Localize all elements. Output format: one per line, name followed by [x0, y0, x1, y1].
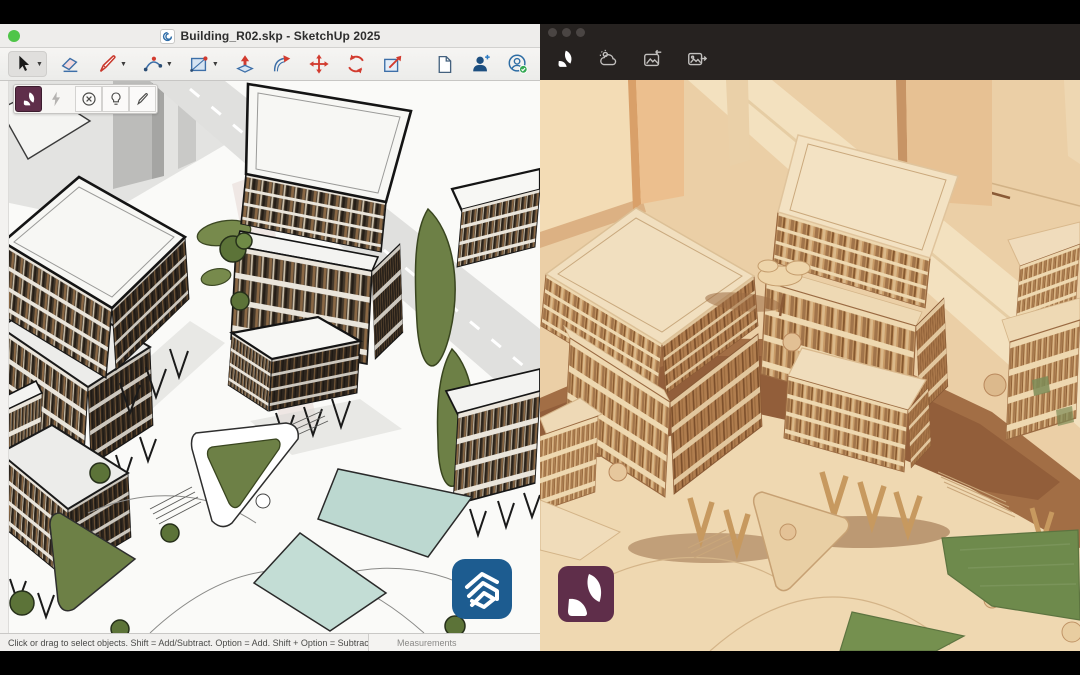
chevron-down-icon: ▼: [120, 61, 127, 68]
eraser-tool-button[interactable]: [56, 51, 84, 77]
traffic-light-minimize[interactable]: [562, 28, 571, 37]
pencil-icon: [96, 53, 118, 75]
add-collaborator-button[interactable]: [467, 51, 495, 77]
window-title: Building_R02.skp - SketchUp 2025: [181, 29, 381, 43]
veras-window: [540, 24, 1080, 651]
veras-header-toolbar: [552, 46, 710, 72]
image-arrow-out-icon: [686, 48, 708, 70]
lightbulb-icon: [108, 91, 124, 107]
veras-logo: [558, 566, 614, 622]
rotate-tool-button[interactable]: [342, 51, 370, 77]
rotate-icon: [345, 53, 367, 75]
cancel-render-button[interactable]: [75, 86, 102, 112]
sketchup-viewport[interactable]: [0, 81, 540, 633]
account-button[interactable]: [504, 51, 532, 77]
arc-tool-button[interactable]: ▼: [139, 51, 176, 77]
render-scene: [540, 80, 1080, 651]
screenshot-root: Building_R02.skp - SketchUp 2025 ▼ ▼ ▼ ▼: [0, 0, 1080, 675]
veras-button[interactable]: [15, 86, 42, 112]
sketch-pencil-button[interactable]: [129, 86, 156, 112]
document-icon: [434, 54, 455, 75]
eraser-icon: [59, 53, 81, 75]
titlebar-center: Building_R02.skp - SketchUp 2025: [0, 24, 540, 48]
image-arrow-in-icon: [642, 48, 664, 70]
new-document-button[interactable]: [431, 51, 458, 77]
push-pull-icon: [234, 53, 256, 75]
export-image-button[interactable]: [684, 46, 710, 72]
render-lightbulb-button[interactable]: [102, 86, 129, 112]
veras-header: [540, 24, 1080, 80]
cloud-sun-icon: [598, 48, 620, 70]
select-tool-button[interactable]: ▼: [8, 51, 47, 77]
viewport-left-gutter: [0, 81, 9, 633]
veras-leaf-icon: [21, 91, 37, 107]
veras-home-button[interactable]: [552, 46, 578, 72]
chevron-down-icon: ▼: [166, 61, 173, 68]
sketchup-logo: [452, 559, 512, 619]
traffic-light-green[interactable]: [8, 30, 20, 42]
veras-leaf-icon: [555, 49, 575, 69]
account-icon: [507, 53, 529, 75]
chevron-down-icon: ▼: [212, 61, 219, 68]
status-hint: Click or drag to select objects. Shift =…: [0, 638, 368, 648]
sketchup-app-icon: [160, 29, 175, 44]
person-plus-icon: [470, 53, 492, 75]
line-tool-button[interactable]: ▼: [93, 51, 130, 77]
move-icon: [308, 53, 330, 75]
push-pull-tool-button[interactable]: [231, 51, 259, 77]
follow-me-tool-button[interactable]: [268, 51, 296, 77]
rectangle-tool-button[interactable]: ▼: [185, 51, 222, 77]
arc-icon: [142, 53, 164, 75]
veras-plugin-toolbar: [13, 84, 158, 114]
lightning-icon: [49, 91, 63, 107]
select-arrow-icon: [12, 53, 34, 75]
scale-tool-button[interactable]: [379, 51, 407, 77]
pencil-icon: [135, 91, 151, 107]
measurements-box[interactable]: Measurements: [368, 634, 540, 651]
sketchup-titlebar: Building_R02.skp - SketchUp 2025: [0, 24, 540, 48]
model-scene: [0, 81, 540, 633]
rectangle-icon: [188, 53, 210, 75]
environment-settings-button[interactable]: [596, 46, 622, 72]
render-image-settings-button[interactable]: [640, 46, 666, 72]
sketchup-toolbar: ▼ ▼ ▼ ▼: [0, 48, 540, 81]
sketchup-window: Building_R02.skp - SketchUp 2025 ▼ ▼ ▼ ▼: [0, 24, 540, 651]
window-controls: [548, 28, 585, 37]
scale-icon: [382, 53, 404, 75]
measurements-label: Measurements: [397, 638, 457, 648]
follow-me-icon: [271, 53, 293, 75]
move-tool-button[interactable]: [305, 51, 333, 77]
veras-render-view[interactable]: [540, 80, 1080, 651]
circle-x-icon: [81, 91, 97, 107]
render-lightning-button[interactable]: [42, 86, 69, 112]
traffic-light-zoom[interactable]: [576, 28, 585, 37]
chevron-down-icon: ▼: [36, 61, 43, 68]
traffic-light-close[interactable]: [548, 28, 557, 37]
sketchup-statusbar: Click or drag to select objects. Shift =…: [0, 633, 540, 651]
